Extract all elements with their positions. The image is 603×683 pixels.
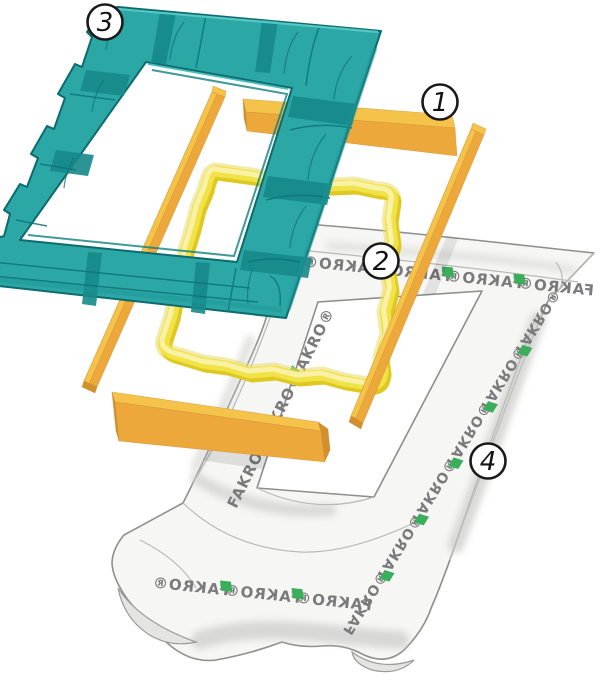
callout-4: 4 [471, 444, 506, 479]
callout-1: 1 [423, 85, 458, 120]
callout-number: 4 [480, 447, 497, 477]
illustration-canvas: FAKRO® FAKRO® FAKRO® FAKRO® FAKRO® FAKRO… [0, 0, 603, 683]
batten-left [82, 86, 226, 393]
callout-3: 3 [88, 5, 123, 40]
callout-number: 1 [432, 88, 449, 118]
callout-number: 3 [97, 8, 114, 38]
callout-number: 2 [373, 247, 390, 277]
exploded-parts-illustration: FAKRO® FAKRO® FAKRO® FAKRO® FAKRO® FAKRO… [0, 0, 603, 683]
callout-2: 2 [364, 244, 399, 279]
membrane-print-right: FAKRO® FAKRO® FAKRO® FAKRO® FAKRO® FAKRO… [339, 286, 565, 638]
